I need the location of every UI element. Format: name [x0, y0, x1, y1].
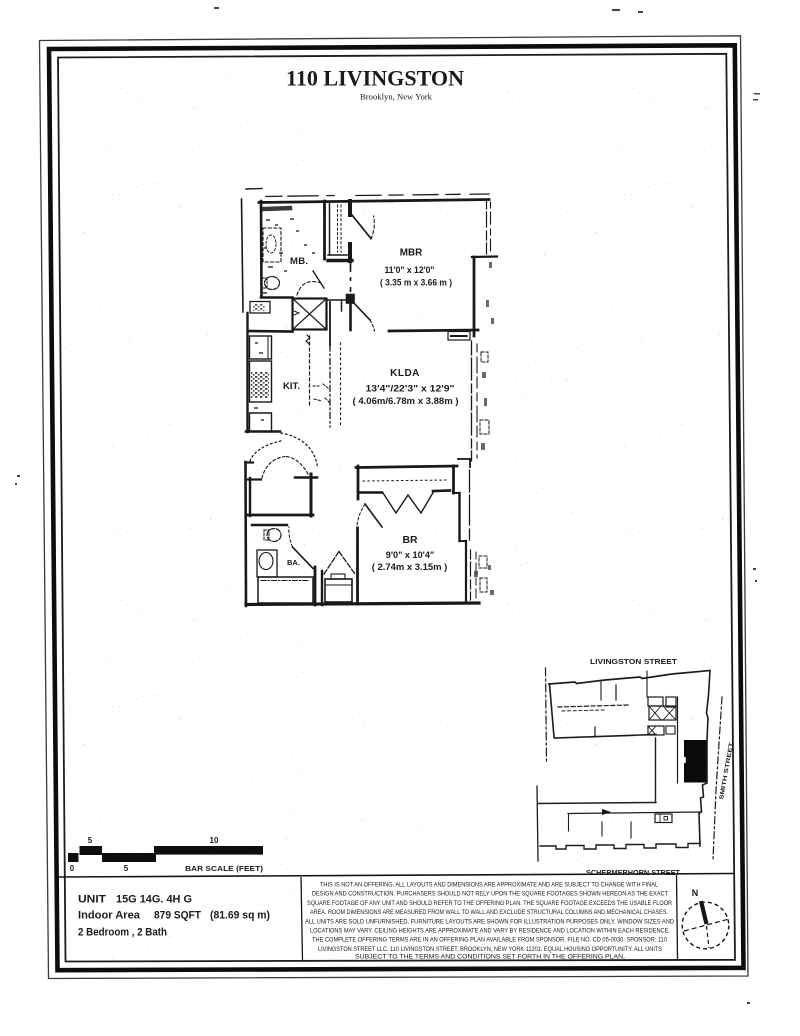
svg-text:SUBJECT TO THE TERMS AND CONDI: SUBJECT TO THE TERMS AND CONDITIONS SET … [355, 954, 625, 961]
svg-text:110 LIVINGSTON: 110 LIVINGSTON [286, 66, 464, 91]
svg-text:( 3.35 m x 3.66 m ): ( 3.35 m x 3.66 m ) [380, 278, 452, 288]
svg-text:10: 10 [210, 836, 219, 845]
svg-text:15G 14G. 4H G: 15G 14G. 4H G [116, 894, 192, 906]
svg-text:5: 5 [88, 836, 93, 845]
svg-text:KLDA: KLDA [390, 368, 420, 379]
svg-text:2 Bedroom , 2 Bath: 2 Bedroom , 2 Bath [78, 927, 167, 939]
svg-text:13'4"/22'3" x 12'9": 13'4"/22'3" x 12'9" [366, 384, 455, 394]
svg-text:SCHERMERHORN STREET: SCHERMERHORN STREET [586, 868, 680, 877]
svg-text:BR: BR [403, 535, 419, 546]
svg-text:UNIT: UNIT [78, 894, 106, 906]
svg-text:LOCATIONS MAY VARY. CEILING HE: LOCATIONS MAY VARY. CEILING HEIGHTS ARE … [310, 928, 670, 935]
svg-text:LIVINGSTON STREET: LIVINGSTON STREET [590, 657, 677, 666]
svg-text:0: 0 [70, 864, 75, 873]
svg-text:N: N [692, 888, 699, 898]
svg-text:ALL UNITS ARE SOLD UNFURNISHED: ALL UNITS ARE SOLD UNFURNISHED. FURNITUR… [305, 918, 674, 925]
svg-text:SQUARE FOOTAGE OF ANY UNIT AND: SQUARE FOOTAGE OF ANY UNIT AND SHOULD RE… [307, 900, 672, 907]
svg-text:LIVINGSTON STREET LLC. 110 LIV: LIVINGSTON STREET LLC. 110 LIVINGSTON ST… [318, 946, 662, 953]
svg-text:KIT.: KIT. [283, 381, 300, 391]
svg-text:11'0" x 12'0": 11'0" x 12'0" [385, 265, 435, 275]
svg-text:879 SQFT: 879 SQFT [154, 910, 201, 922]
svg-text:5: 5 [124, 864, 129, 873]
svg-text:9'0" x 10'4": 9'0" x 10'4" [386, 550, 435, 560]
svg-text:( 2.74m x 3.15m ): ( 2.74m x 3.15m ) [372, 562, 448, 572]
svg-text:THIS IS NOT AN OFFERING. ALL L: THIS IS NOT AN OFFERING. ALL LAYOUTS AND… [320, 882, 659, 889]
svg-text:( 4.06m/6.78m x 3.88m ): ( 4.06m/6.78m x 3.88m ) [353, 396, 459, 406]
svg-text:DESIGN AND CONSTRUCTION. PURCH: DESIGN AND CONSTRUCTION. PURCHASERS SHOU… [312, 891, 668, 898]
svg-text:BAR SCALE (FEET): BAR SCALE (FEET) [185, 864, 264, 873]
svg-text:(81.69 sq m): (81.69 sq m) [210, 910, 270, 922]
svg-text:Indoor Area: Indoor Area [78, 910, 141, 922]
svg-text:MBR: MBR [400, 248, 423, 259]
svg-text:AREA. ROOM DIMENSIONS ARE MEAS: AREA. ROOM DIMENSIONS ARE MEASURED FROM … [310, 909, 668, 916]
svg-text:THE COMPLETE OFFERING TERMS AR: THE COMPLETE OFFERING TERMS ARE IN AN OF… [312, 937, 668, 944]
svg-text:MB.: MB. [290, 256, 308, 267]
svg-text:Brooklyn, New York: Brooklyn, New York [360, 92, 433, 102]
svg-text:BA.: BA. [287, 558, 300, 567]
